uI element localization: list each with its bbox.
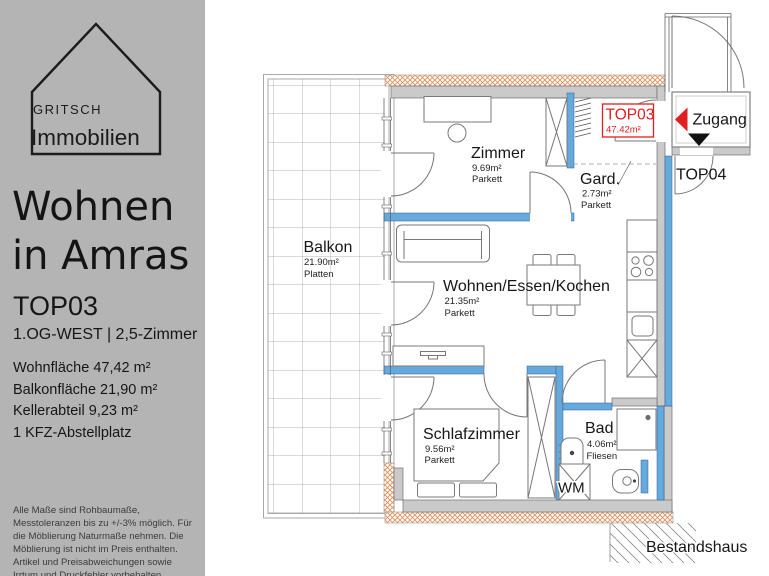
sofa (397, 225, 490, 262)
tv-sideboard (393, 346, 484, 366)
floor-plan: TOP03 47.42m² Balkon 21.90m² Platten Zim… (0, 0, 769, 576)
tall-wardrobe (528, 377, 555, 498)
top04-label: TOP04 (676, 167, 727, 184)
balcony (264, 75, 395, 519)
balkon-area: 21.90m² (304, 257, 339, 268)
zugang-label: Zugang (693, 112, 747, 129)
unit-badge-area: 47.42m² (606, 125, 641, 136)
kitchen-unit (627, 220, 657, 377)
wc (613, 470, 639, 494)
schlafzimmer-label: Schlafzimmer (423, 426, 521, 443)
stairwell-walls (665, 14, 731, 93)
schlafzimmer-area: 9.56m² (425, 444, 455, 455)
zimmer-floor: Parkett (472, 174, 502, 185)
zimmer-label: Zimmer (471, 145, 526, 162)
balkon-floor: Platten (304, 269, 334, 280)
bestandshaus-label: Bestandshaus (646, 539, 747, 556)
bad-label: Bad (585, 420, 613, 437)
chair (448, 124, 466, 142)
unit-badge-label: TOP03 (606, 107, 655, 124)
gard-label: Gard. (580, 171, 620, 188)
wm-label: WM (558, 480, 585, 497)
desk (424, 97, 491, 123)
bad-floor: Fliesen (587, 451, 618, 462)
wohnen-area: 21.35m² (445, 296, 480, 307)
wohnen-label: Wohnen/Essen/Kochen (443, 278, 610, 295)
wohnen-floor: Parkett (445, 308, 475, 319)
gard-floor: Parkett (581, 200, 611, 211)
bad-area: 4.06m² (587, 439, 617, 450)
schlafzimmer-floor: Parkett (425, 455, 455, 466)
balcony-tile-grid (268, 79, 385, 514)
gard-area: 2.73m² (582, 189, 612, 200)
zimmer-area: 9.69m² (472, 163, 502, 174)
wohnen-furniture (393, 220, 657, 377)
balkon-label: Balkon (304, 239, 353, 256)
brochure-page: GRITSCH Immobilien Wohnen in Amras TOP03… (0, 0, 769, 576)
coat-rack-icon (575, 98, 591, 137)
shower (617, 409, 656, 450)
wardrobe (546, 98, 567, 166)
unit-badge: TOP03 47.42m² (603, 104, 655, 137)
